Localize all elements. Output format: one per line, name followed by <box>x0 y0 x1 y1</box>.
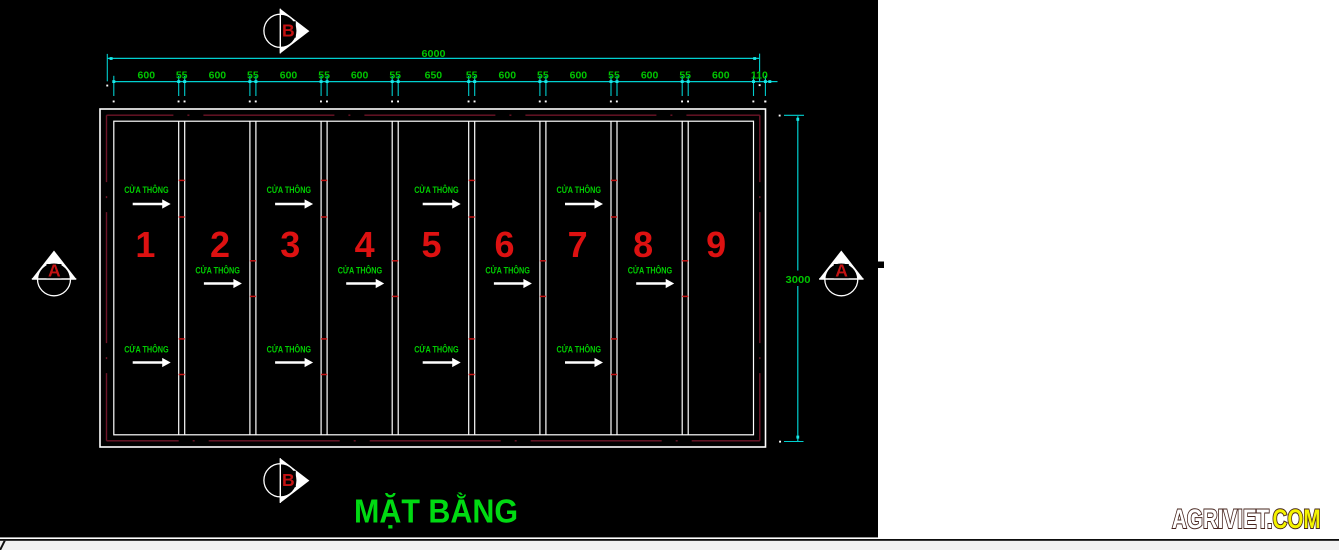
svg-text:2: 2 <box>210 224 230 265</box>
svg-text:55: 55 <box>176 70 188 82</box>
svg-text:55: 55 <box>318 70 330 82</box>
svg-text:B: B <box>282 21 295 41</box>
svg-text:5: 5 <box>421 224 441 265</box>
svg-text:4: 4 <box>355 224 375 265</box>
svg-text:CỬA THÔNG: CỬA THÔNG <box>557 343 602 354</box>
svg-text:AGRIVIET.COM: AGRIVIET.COM <box>1172 504 1321 534</box>
svg-text:8: 8 <box>633 224 653 265</box>
svg-text:600: 600 <box>499 70 517 82</box>
svg-text:7: 7 <box>568 224 588 265</box>
svg-text:55: 55 <box>466 70 478 82</box>
svg-text:CỬA THÔNG: CỬA THÔNG <box>124 343 169 354</box>
svg-text:600: 600 <box>570 70 588 82</box>
svg-text:CỬA THÔNG: CỬA THÔNG <box>267 343 312 354</box>
svg-text:600: 600 <box>641 70 659 82</box>
svg-text:55: 55 <box>537 70 549 82</box>
svg-text:55: 55 <box>389 70 401 82</box>
svg-text:600: 600 <box>712 70 730 82</box>
svg-text:600: 600 <box>138 70 156 82</box>
svg-text:110: 110 <box>751 70 768 82</box>
svg-text:650: 650 <box>425 70 443 82</box>
svg-text:CỬA THÔNG: CỬA THÔNG <box>195 264 240 275</box>
svg-text:3000: 3000 <box>786 274 811 286</box>
svg-text:B: B <box>282 470 295 490</box>
svg-text:6000: 6000 <box>422 48 446 60</box>
svg-text:600: 600 <box>209 70 227 82</box>
svg-text:CỬA THÔNG: CỬA THÔNG <box>267 184 312 195</box>
svg-text:CỬA THÔNG: CỬA THÔNG <box>414 343 459 354</box>
svg-text:A: A <box>48 260 61 280</box>
svg-text:CỬA THÔNG: CỬA THÔNG <box>414 184 459 195</box>
svg-text:55: 55 <box>247 70 259 82</box>
svg-text:CỬA THÔNG: CỬA THÔNG <box>338 264 383 275</box>
svg-text:600: 600 <box>351 70 369 82</box>
svg-text:A: A <box>835 260 848 280</box>
svg-text:55: 55 <box>608 70 620 82</box>
svg-text:55: 55 <box>679 70 691 82</box>
svg-text:6: 6 <box>494 224 514 265</box>
svg-text:CỬA THÔNG: CỬA THÔNG <box>485 264 530 275</box>
svg-text:3: 3 <box>280 224 300 265</box>
svg-text:600: 600 <box>280 70 298 82</box>
svg-text:CỬA THÔNG: CỬA THÔNG <box>628 264 673 275</box>
svg-text:1: 1 <box>135 224 155 265</box>
svg-text:MẶT BẰNG: MẶT BẰNG <box>354 492 518 529</box>
svg-text:CỬA THÔNG: CỬA THÔNG <box>124 184 169 195</box>
svg-text:CỬA THÔNG: CỬA THÔNG <box>557 184 602 195</box>
svg-text:9: 9 <box>706 224 726 265</box>
